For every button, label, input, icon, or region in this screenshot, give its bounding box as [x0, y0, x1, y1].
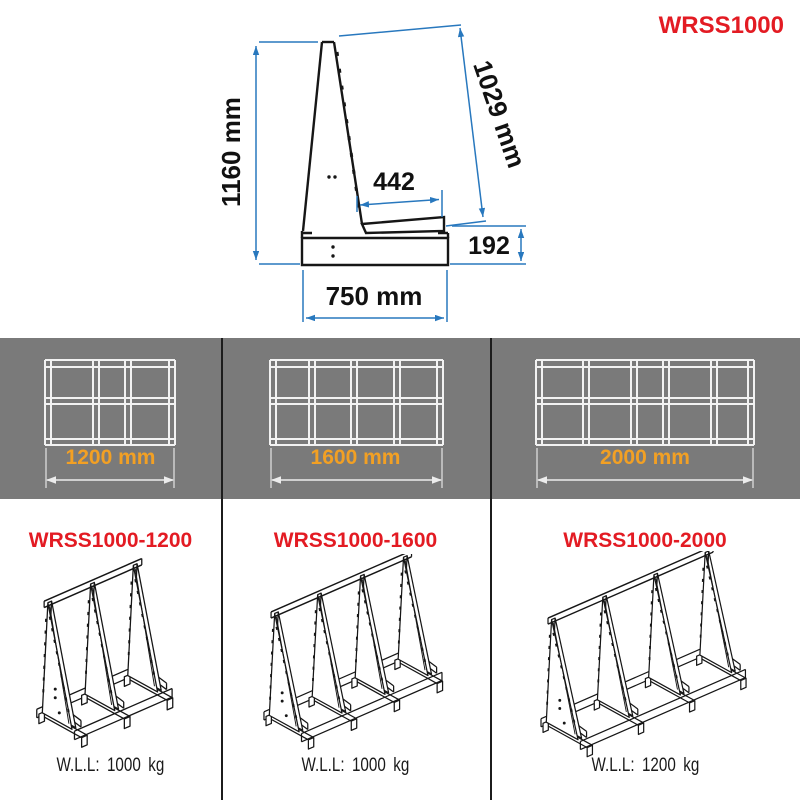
aframe-profile — [302, 42, 448, 265]
product-sheet: WRSS1000 — [0, 0, 800, 800]
wll-rating-2000: W.L.L: 1200 kg — [490, 755, 800, 777]
front-view-cell-1200: 1200 mm — [0, 338, 221, 499]
column-divider-left — [221, 338, 223, 800]
front-view-drawing-2000 — [490, 338, 800, 499]
wll-rating-1200: W.L.L: 1000 kg — [0, 755, 221, 777]
front-view-cell-2000: 2000 mm — [490, 338, 800, 499]
front-view-drawing-1200 — [0, 338, 221, 499]
wll-rating-1600: W.L.L: 1000 kg — [221, 755, 490, 777]
iso-drawing-1200 — [17, 556, 205, 755]
width-label-1600: 1600 mm — [221, 446, 490, 470]
iso-drawing-2000 — [522, 551, 768, 760]
dim-height-label: 1160 mm — [216, 97, 246, 207]
model-name-2000: WRSS1000-2000 — [490, 529, 800, 553]
dim-width-label: 750 mm — [326, 281, 423, 311]
dim-base-label: 192 — [468, 232, 510, 260]
front-view-drawing-1600 — [221, 338, 490, 499]
iso-drawing-1600 — [247, 554, 465, 756]
column-divider-right — [490, 338, 492, 800]
width-variants-band: 1200 mm 1600 mm 2000 mm — [0, 338, 800, 499]
front-view-cell-1600: 1600 mm — [221, 338, 490, 499]
dim-shelf-label: 442 — [373, 168, 415, 196]
variant-columns: WRSS1000-1200 W.L.L: 1000 kg WRSS1000-16… — [0, 499, 800, 800]
width-label-2000: 2000 mm — [490, 446, 800, 470]
side-view-drawing: 1160 mm 1029 mm 442 192 750 mm — [0, 0, 800, 336]
variant-column-1600: WRSS1000-1600 W.L.L: 1000 kg — [221, 499, 490, 800]
model-name-1600: WRSS1000-1600 — [221, 529, 490, 553]
profile-hole-dots — [327, 175, 336, 257]
variant-column-2000: WRSS1000-2000 W.L.L: 1200 kg — [490, 499, 800, 800]
dim-slant-label: 1029 mm — [467, 57, 532, 172]
width-label-1200: 1200 mm — [0, 446, 221, 470]
model-name-1200: WRSS1000-1200 — [0, 529, 221, 553]
variant-column-1200: WRSS1000-1200 W.L.L: 1000 kg — [0, 499, 221, 800]
